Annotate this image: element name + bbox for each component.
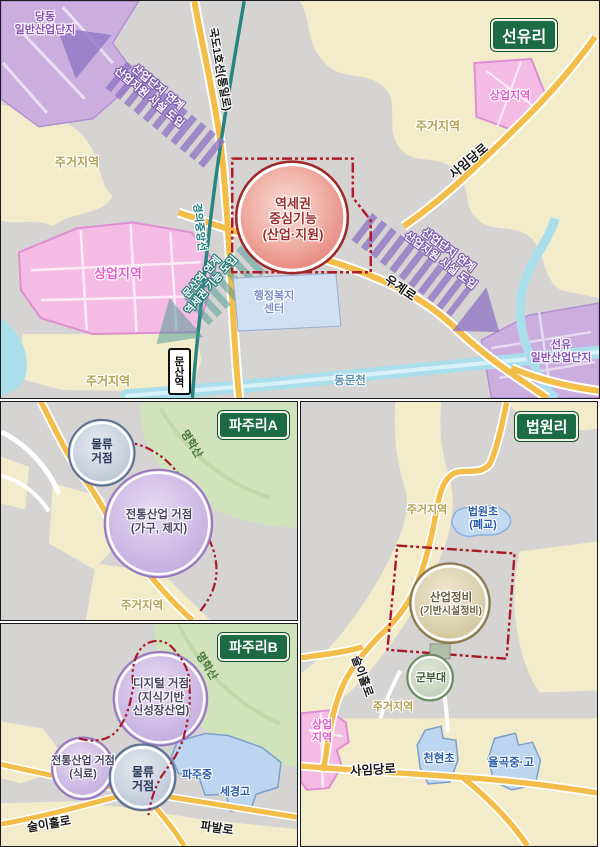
munsan-station-badge: 문산역	[168, 348, 191, 395]
label-military: 군부대	[401, 672, 461, 685]
label-digital-hub: 디지털 거점 (지식기반 신성장산업)	[101, 678, 221, 719]
label-logistics-hub: 물류 거점	[72, 439, 132, 466]
label-sangeop: 상업 지역	[303, 719, 341, 745]
label-traditional-hub: 전통산업 거점 (가구, 제지)	[99, 509, 219, 536]
label-core-maintenance: 산업정비 (기반시설정비)	[391, 592, 511, 617]
map-beobwonri	[301, 402, 597, 846]
label-school-cheonhyeon: 천현초	[409, 753, 469, 767]
panel-pajuriB: 디지털 거점 (지식기반 신성장산업) 전통산업 거점 (식료) 물류 거점 파…	[0, 623, 298, 847]
stream-label-dongmun: 동문천	[320, 375, 380, 389]
label-school-segyeong: 세경고	[210, 786, 260, 799]
title-pajuriB: 파주리B	[218, 633, 289, 661]
label-sangeop-left: 상업지역	[81, 266, 155, 281]
label-jugeo-left: 주거지역	[45, 155, 109, 169]
title-pajuriA: 파주리A	[218, 411, 289, 439]
label-school-paju: 파주중	[172, 769, 222, 782]
label-logistics-hub: 물류 거점	[113, 765, 173, 793]
label-jugeo-bottom: 주거지역	[76, 374, 140, 388]
title-seonyuri: 선유리	[491, 19, 557, 51]
panel-beobwonri: 주거지역 법원초 (폐교) 산업정비 (기반시설정비) 군부대 주거지역 상업 …	[300, 401, 598, 847]
label-jugeo-topright: 주거지역	[406, 119, 470, 133]
label-dangdong: 당동 일반산업단지	[8, 11, 82, 37]
label-seonyu-industrial: 선유 일반산업단지	[511, 339, 600, 365]
panel-pajuriA: 물류 거점 전통산업 거점 (가구, 제지) 주거지역 명학산 파주리A	[0, 401, 298, 621]
label-jugeo: 주거지역	[106, 600, 178, 614]
label-school-closed: 법원초 (폐교)	[453, 506, 513, 532]
title-beobwonri: 법원리	[515, 412, 578, 441]
label-sangeop-topright: 상업지역	[475, 90, 545, 103]
label-welfare-center: 행정복지 센터	[239, 290, 309, 316]
panel-seonyuri: 당동 일반산업단지 주거지역 상업지역 주거지역 주거지역 상업지역 선유 일반…	[0, 0, 600, 399]
label-school-yulgok: 율곡중·고	[476, 757, 546, 771]
concept-map: 당동 일반산업단지 주거지역 상업지역 주거지역 주거지역 상업지역 선유 일반…	[0, 0, 600, 847]
